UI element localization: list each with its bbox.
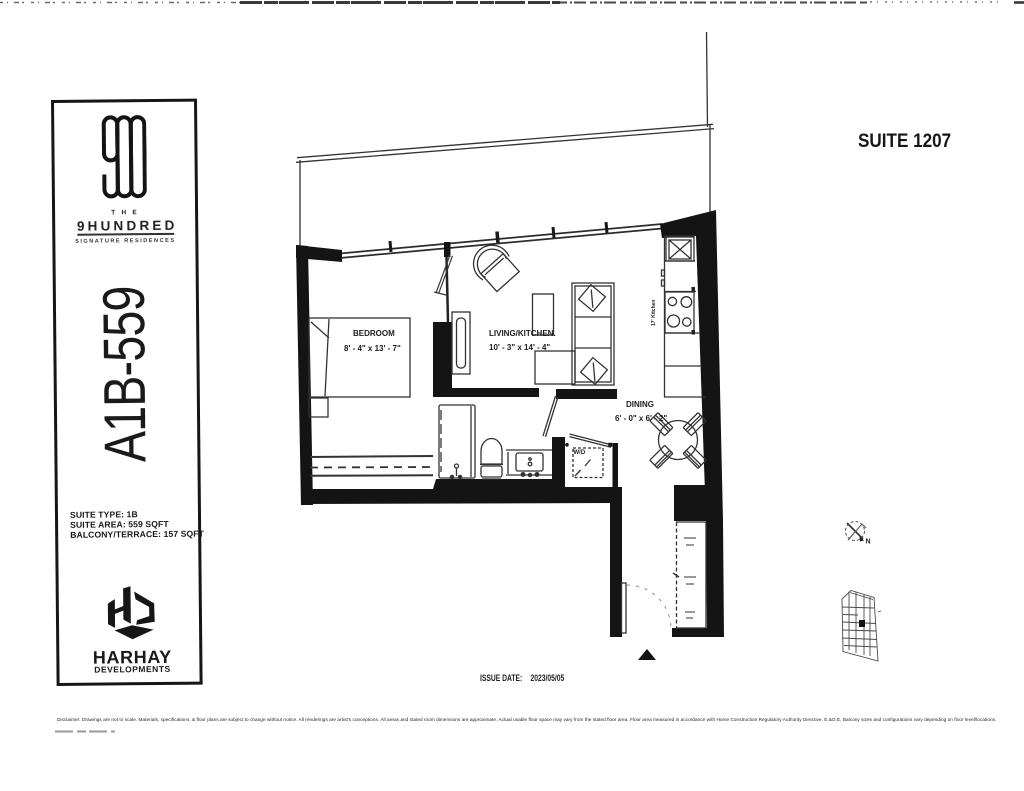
svg-text:LIVING/KITCHEN.: LIVING/KITCHEN. — [489, 329, 556, 338]
svg-text:17' Kitchen: 17' Kitchen — [651, 300, 657, 326]
svg-text:10' - 3" x 14' - 4": 10' - 3" x 14' - 4" — [489, 343, 550, 352]
svg-text:N: N — [866, 539, 871, 546]
svg-text:8' - 4" x 13' - 7": 8' - 4" x 13' - 7" — [344, 344, 401, 353]
svg-text:BEDROOM: BEDROOM — [353, 329, 395, 338]
svg-text:6' - 0" x 6' - 2": 6' - 0" x 6' - 2" — [615, 414, 668, 423]
svg-text:DINING: DINING — [626, 400, 654, 409]
svg-text:W/D: W/D — [574, 450, 586, 456]
